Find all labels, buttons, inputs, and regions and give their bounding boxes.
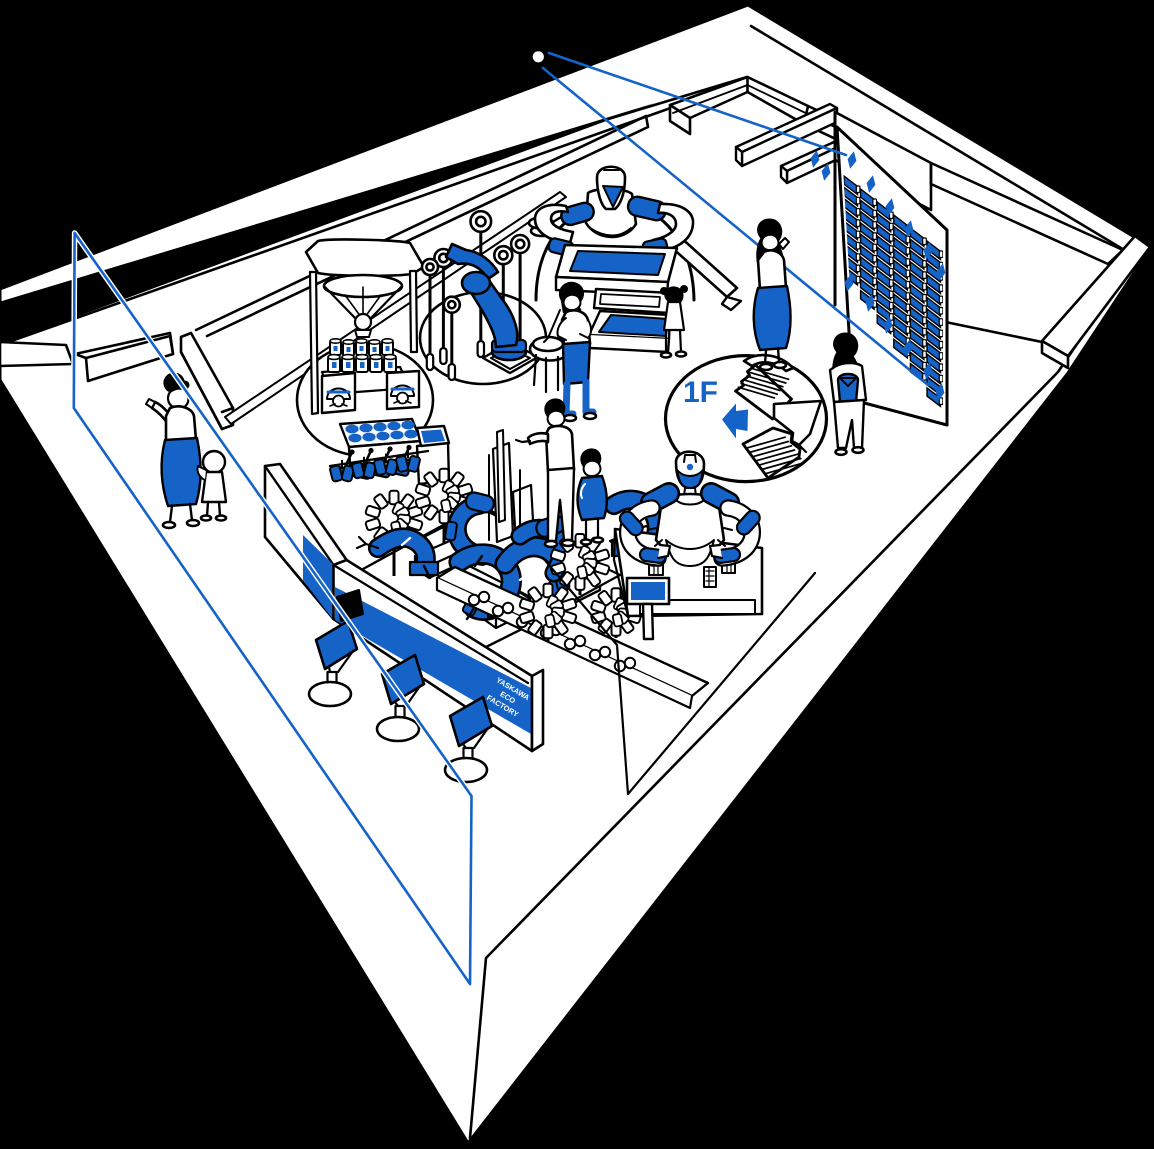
svg-text:1F: 1F xyxy=(683,376,718,409)
